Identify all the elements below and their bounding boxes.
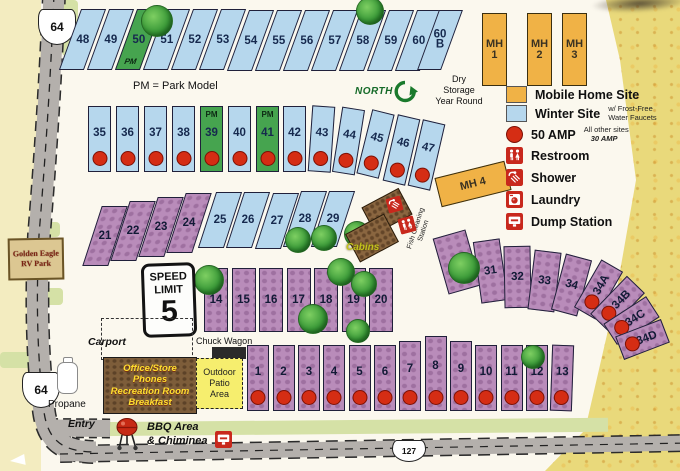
bbq-grill-icon [114, 417, 142, 451]
50amp-dot [479, 390, 494, 405]
site-15: 15 [232, 268, 256, 332]
site-number: 54 [244, 35, 257, 45]
site-number: 17 [292, 295, 305, 305]
50amp-dot [204, 151, 219, 166]
site-3: 3 [298, 345, 320, 411]
site-number: 37 [149, 127, 162, 137]
office-building: Office/Store Phones Recreation Room Brea… [103, 357, 197, 414]
north-arrow-icon [393, 79, 418, 104]
site-7: 7 [399, 341, 421, 411]
50amp-dot [232, 151, 247, 166]
site-number: 31 [483, 265, 497, 277]
site-8: 8 [425, 336, 447, 411]
carport-label: Carport [88, 336, 126, 348]
site-40: 40 [228, 106, 251, 172]
site-39: 39PM [200, 106, 223, 172]
legend-winter-site: Winter Site w/ Frost-Free Water Faucets [506, 105, 657, 122]
site-number: 14 [210, 295, 223, 305]
50amp-dot [327, 390, 342, 405]
site-number: 20 [375, 295, 388, 305]
site-number: 19 [347, 295, 360, 305]
site-38: 38 [172, 106, 195, 172]
campground-map: 64 64 127 Golden Eagle RV Park 484950PM5… [0, 0, 680, 471]
site-number: 27 [271, 216, 284, 226]
entry-label: Entry [68, 418, 95, 430]
site-number: 4 [331, 366, 337, 376]
propane-label: Propane [48, 399, 86, 410]
50amp-dot [287, 151, 302, 166]
site-number: 47 [421, 142, 436, 155]
site-number: 28 [299, 214, 312, 224]
site-number: 39 [205, 127, 218, 137]
site-number: 8 [432, 361, 438, 371]
legend-laundry: Laundry [506, 191, 580, 208]
site-number: 3 [306, 366, 312, 376]
site-number: 18 [320, 295, 333, 305]
50amp-dot [530, 390, 545, 405]
site-number: 2 [280, 366, 286, 376]
site-number: 53 [216, 34, 229, 44]
site-number: 52 [188, 34, 201, 44]
site-1: 1 [247, 345, 269, 411]
50amp-dot [388, 161, 406, 179]
site-5: 5 [349, 345, 371, 411]
site-number: 46 [396, 137, 411, 150]
site-number: 22 [127, 226, 140, 236]
park-model-tag: PM [262, 110, 274, 119]
mobile-home-site-2: MH 2 [527, 13, 552, 86]
50amp-dot [413, 166, 431, 184]
laundry-icon [506, 191, 523, 208]
50amp-dot [428, 390, 443, 405]
site-number: 23 [155, 222, 168, 232]
site-number: 11 [505, 366, 517, 376]
tree [351, 271, 377, 297]
site-number: 15 [237, 295, 250, 305]
site-41: 41PM [256, 106, 279, 172]
tree [346, 319, 370, 343]
site-number: 34A [591, 273, 611, 296]
site-number: 55 [272, 35, 285, 45]
50amp-dot [378, 390, 393, 405]
chuck-wagon-label: Chuck Wagon [196, 336, 252, 346]
50amp-dot [504, 390, 519, 405]
propane-tank [57, 362, 78, 394]
park-model-tag: PM [206, 110, 218, 119]
50amp-dot [403, 390, 418, 405]
site-number: 42 [288, 127, 301, 137]
site-number: 44 [342, 129, 356, 141]
dry-storage-note: Dry Storage Year Round [428, 74, 490, 106]
site-11: 11 [501, 345, 523, 411]
50amp-dot-icon [506, 126, 523, 143]
site-number: 60 [412, 35, 425, 45]
mobile-home-swatch [506, 86, 527, 103]
site-number: 58 [356, 35, 369, 45]
50amp-dot [554, 390, 570, 406]
tree [194, 265, 224, 295]
legend-mobile-home: Mobile Home Site [506, 86, 639, 103]
site-number: 50 [132, 34, 145, 44]
mh-label: MH 2 [531, 39, 548, 61]
50amp-dot [92, 151, 107, 166]
site-4: 4 [323, 345, 345, 411]
site-number: 34 [564, 278, 579, 291]
50amp-dot [454, 390, 469, 405]
mh-label: MH 3 [566, 39, 583, 61]
dump-station-icon [506, 213, 523, 230]
site-number: 59 [384, 35, 397, 45]
winter-site-swatch [506, 105, 527, 122]
tree [448, 252, 480, 284]
site-2: 2 [273, 345, 295, 411]
site-16: 16 [259, 268, 283, 332]
site-number: 13 [556, 366, 569, 377]
dump-station-icon [215, 431, 232, 448]
50amp-dot [260, 151, 275, 166]
site-number: 35 [93, 127, 106, 137]
site-number: 1 [255, 366, 261, 376]
site-number: 48 [76, 34, 89, 44]
site-43: 43 [308, 105, 336, 172]
site-number: 33 [538, 275, 552, 287]
tree [521, 345, 545, 369]
site-number: 10 [480, 366, 493, 376]
site-35: 35 [88, 106, 111, 172]
park-name-sign: Golden Eagle RV Park [8, 238, 65, 281]
site-number: 25 [214, 215, 227, 225]
site-number: 43 [315, 127, 328, 138]
50amp-dot [337, 152, 354, 169]
tree [141, 5, 173, 37]
legend-shower: Shower [506, 169, 576, 186]
site-number: 6 [382, 366, 388, 376]
50amp-dot [302, 390, 317, 405]
site-number: 29 [327, 214, 340, 224]
mobile-home-site-3: MH 3 [562, 13, 587, 86]
50amp-dot [362, 154, 380, 172]
50amp-dot [148, 151, 163, 166]
site-number: 21 [99, 231, 112, 241]
site-number: 32 [511, 272, 524, 283]
tree [285, 227, 311, 253]
site-13: 13 [550, 345, 574, 412]
shower-icon [506, 169, 523, 186]
50amp-dot [176, 151, 191, 166]
site-36: 36 [116, 106, 139, 172]
site-number: 41 [261, 127, 274, 137]
legend-restroom: Restroom [506, 147, 589, 164]
50amp-dot [251, 390, 266, 405]
park-model-tag: PM [123, 57, 138, 66]
bbq-area-label: BBQ Area & Chiminea [147, 421, 208, 449]
site-number: 56 [300, 35, 313, 45]
site-number: 16 [265, 295, 278, 305]
mh-label: MH 4 [459, 175, 487, 192]
50amp-dot [312, 150, 328, 166]
50amp-dot [276, 390, 291, 405]
site-6: 6 [374, 345, 396, 411]
site-number: 40 [233, 127, 246, 137]
site-number: 9 [458, 364, 464, 374]
site-42: 42 [283, 106, 306, 172]
site-number: 7 [407, 364, 413, 374]
site-number: 26 [242, 215, 255, 225]
site-number: 49 [104, 34, 117, 44]
site-number: 5 [356, 366, 362, 376]
outdoor-patio-area: Outdoor Patio Area [196, 358, 243, 409]
park-model-note: PM = Park Model [133, 80, 218, 92]
tree [298, 304, 328, 334]
site-number: 57 [328, 35, 341, 45]
north-label: NORTH [355, 86, 393, 97]
site-32: 32 [503, 246, 531, 308]
restroom-icon [506, 147, 523, 164]
cabins-label: Cabins [346, 242, 379, 253]
site-10: 10 [475, 345, 497, 411]
road-arrow [9, 454, 25, 467]
mh-label: MH 1 [486, 39, 503, 61]
legend-dump-station: Dump Station [506, 213, 612, 230]
50amp-dot [352, 390, 367, 405]
site-number: 24 [183, 218, 196, 228]
site-number: 36 [121, 127, 134, 137]
legend-50amp: 50 AMP All other sites30 AMP [506, 126, 629, 143]
site-number: 60 B [434, 30, 447, 51]
tree [311, 225, 337, 251]
50amp-dot [120, 151, 135, 166]
site-number: 38 [177, 127, 190, 137]
site-9: 9 [450, 341, 472, 411]
site-number: 45 [370, 131, 385, 144]
site-37: 37 [144, 106, 167, 172]
